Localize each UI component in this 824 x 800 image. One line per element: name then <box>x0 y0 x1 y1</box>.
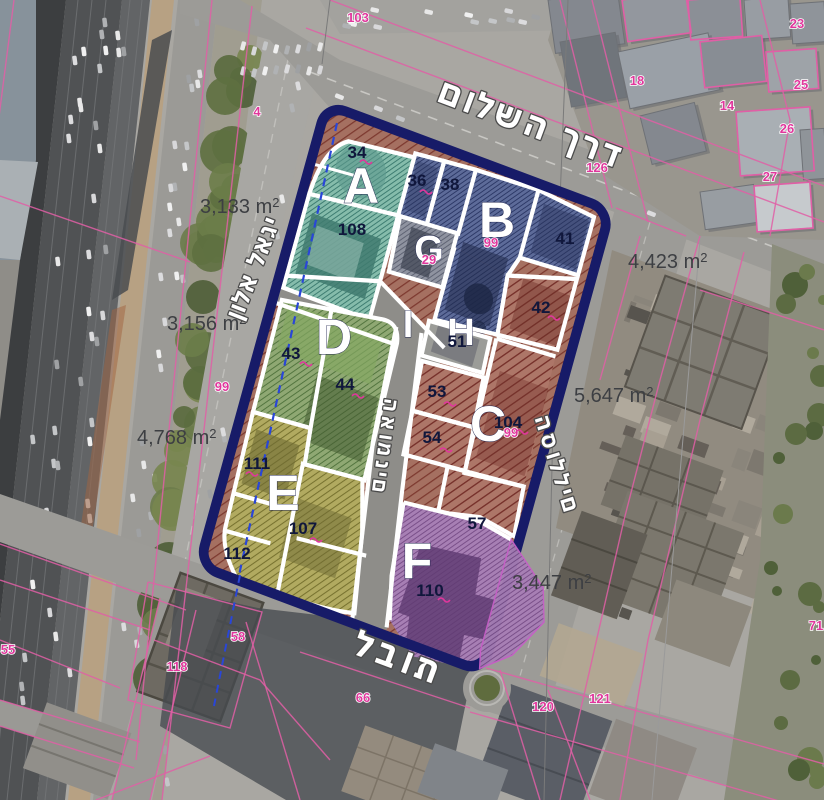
svg-text:25: 25 <box>794 77 808 92</box>
svg-text:41: 41 <box>556 229 575 248</box>
svg-text:121: 121 <box>589 691 611 706</box>
svg-text:99: 99 <box>504 425 518 440</box>
svg-text:38: 38 <box>441 175 460 194</box>
svg-text:107: 107 <box>289 519 317 538</box>
svg-text:44: 44 <box>336 375 355 394</box>
svg-text:E: E <box>266 465 299 521</box>
svg-text:108: 108 <box>338 220 366 239</box>
svg-text:14: 14 <box>720 98 735 113</box>
svg-text:112: 112 <box>223 544 250 563</box>
svg-text:54: 54 <box>423 428 442 447</box>
svg-text:53: 53 <box>428 382 447 401</box>
svg-text:I: I <box>403 304 414 346</box>
svg-text:29: 29 <box>422 252 436 267</box>
svg-text:A: A <box>343 158 379 214</box>
svg-text:18: 18 <box>630 73 644 88</box>
svg-text:51: 51 <box>448 332 467 351</box>
svg-text:23: 23 <box>790 16 804 31</box>
svg-text:111: 111 <box>244 454 271 473</box>
svg-text:D: D <box>316 309 352 365</box>
svg-text:36: 36 <box>408 171 427 190</box>
svg-text:5,647 m2: 5,647 m2 <box>574 384 654 407</box>
svg-text:34: 34 <box>348 143 367 162</box>
svg-text:4,423 m2: 4,423 m2 <box>628 250 708 273</box>
svg-text:71: 71 <box>809 618 823 633</box>
svg-text:99: 99 <box>215 379 229 394</box>
svg-text:3,447 m2: 3,447 m2 <box>512 571 592 594</box>
svg-text:120: 120 <box>532 699 554 714</box>
svg-text:55: 55 <box>1 642 15 657</box>
svg-text:103: 103 <box>347 10 369 25</box>
svg-text:58: 58 <box>231 629 245 644</box>
svg-text:110: 110 <box>416 581 443 600</box>
svg-text:4: 4 <box>253 104 261 119</box>
svg-text:118: 118 <box>167 659 188 674</box>
svg-text:99: 99 <box>484 235 498 250</box>
svg-text:3,133 m2: 3,133 m2 <box>200 195 280 218</box>
svg-text:42: 42 <box>532 298 551 317</box>
svg-text:57: 57 <box>468 514 487 533</box>
svg-text:26: 26 <box>780 121 794 136</box>
svg-text:27: 27 <box>763 169 777 184</box>
svg-text:4,768 m2: 4,768 m2 <box>137 426 217 449</box>
svg-text:126: 126 <box>586 160 608 175</box>
svg-text:43: 43 <box>282 344 301 363</box>
svg-text:66: 66 <box>356 690 370 705</box>
